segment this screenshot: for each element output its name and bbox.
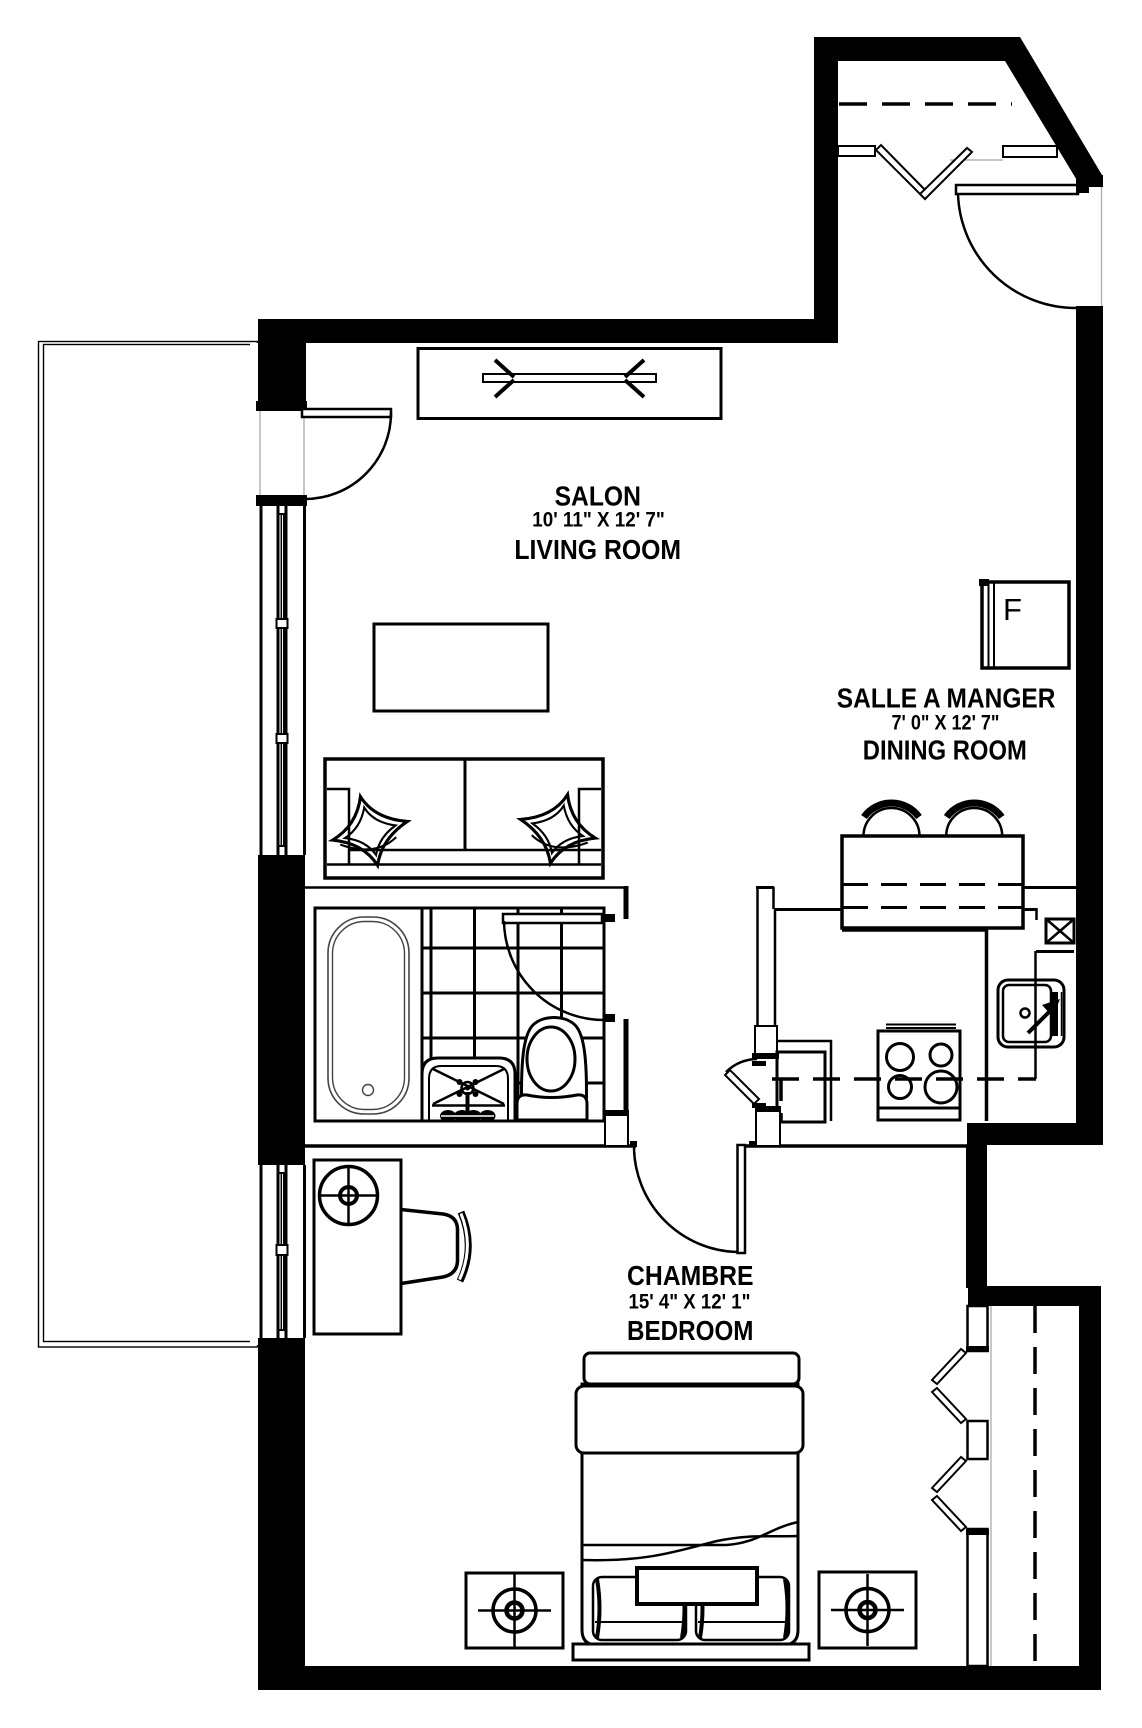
svg-text:15' 4" X 12' 1": 15' 4" X 12' 1" [629,1291,751,1314]
svg-text:LIVING ROOM: LIVING ROOM [514,534,681,565]
svg-text:DINING ROOM: DINING ROOM [863,735,1027,766]
svg-text:CHAMBRE: CHAMBRE [627,1260,754,1291]
svg-text:F: F [1003,592,1022,627]
svg-text:10' 11" X 12' 7": 10' 11" X 12' 7" [532,509,665,532]
svg-text:SALON: SALON [555,481,641,512]
svg-text:7' 0" X 12' 7": 7' 0" X 12' 7" [892,712,1000,735]
svg-text:BEDROOM: BEDROOM [627,1315,754,1346]
svg-text:SALLE A MANGER: SALLE A MANGER [837,683,1056,714]
